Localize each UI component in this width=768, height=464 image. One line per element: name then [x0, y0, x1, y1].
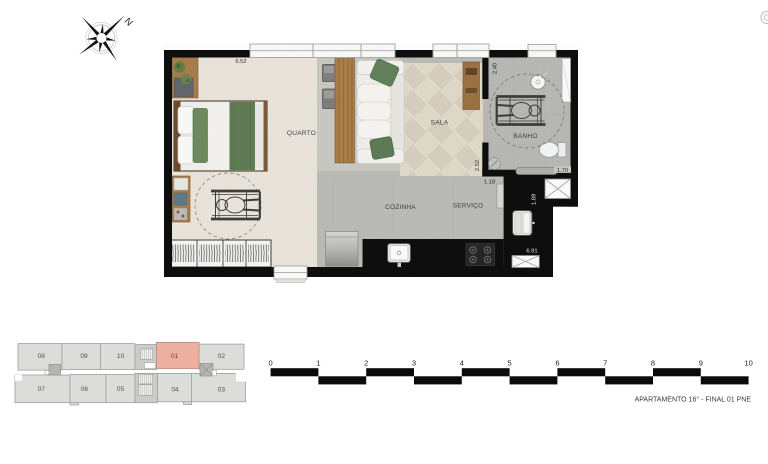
svg-text:01: 01 [171, 353, 179, 360]
svg-text:6.52: 6.52 [235, 59, 246, 65]
svg-text:QUARTO: QUARTO [287, 130, 316, 137]
svg-text:3: 3 [412, 359, 416, 368]
svg-text:10: 10 [744, 359, 752, 368]
svg-text:04: 04 [171, 387, 179, 394]
svg-text:2: 2 [364, 359, 368, 368]
svg-text:0: 0 [269, 359, 273, 368]
svg-text:1.89: 1.89 [532, 194, 538, 205]
svg-text:4: 4 [460, 359, 464, 368]
svg-text:6: 6 [555, 359, 559, 368]
svg-text:N: N [122, 16, 135, 29]
svg-text:2.52: 2.52 [475, 160, 481, 171]
svg-text:6.91: 6.91 [526, 248, 537, 254]
svg-text:06: 06 [81, 386, 89, 393]
svg-text:03: 03 [218, 387, 226, 394]
svg-text:2.40: 2.40 [493, 63, 499, 74]
svg-text:09: 09 [80, 353, 88, 360]
svg-text:5: 5 [508, 359, 512, 368]
svg-text:02: 02 [218, 353, 226, 360]
svg-text:1: 1 [316, 359, 320, 368]
svg-text:APARTAMENTO 16° - FINAL 01 PNE: APARTAMENTO 16° - FINAL 01 PNE [635, 396, 752, 404]
svg-text:07: 07 [38, 386, 46, 393]
svg-text:8: 8 [651, 359, 655, 368]
svg-text:1.18: 1.18 [484, 179, 495, 185]
svg-text:10: 10 [117, 353, 125, 360]
svg-text:1.70: 1.70 [557, 168, 568, 174]
svg-text:05: 05 [117, 386, 125, 393]
svg-text:SERVIÇO: SERVIÇO [453, 202, 484, 209]
svg-text:SALA: SALA [431, 119, 449, 126]
svg-text:7: 7 [603, 359, 607, 368]
svg-text:08: 08 [38, 353, 46, 360]
svg-text:COZINHA: COZINHA [385, 204, 416, 211]
svg-text:9: 9 [699, 359, 703, 368]
